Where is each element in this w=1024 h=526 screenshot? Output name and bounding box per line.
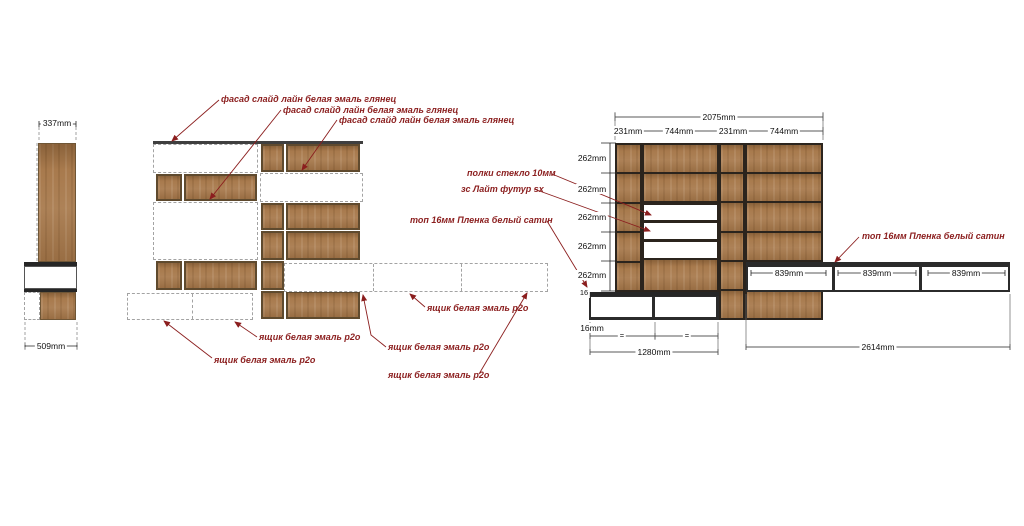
lowboard-divider (461, 264, 462, 291)
drawer-front (655, 297, 716, 317)
equal-mark: = (683, 331, 691, 341)
wood-shelf-cell (747, 291, 821, 318)
wood-panel (184, 261, 257, 290)
fasad-panel (260, 173, 363, 202)
wood-shelf-cell (721, 291, 743, 318)
dim-label-2075: 2075mm (700, 112, 737, 122)
wood-shelf-cell (721, 145, 743, 172)
dim-label-row: 262mm (576, 270, 608, 280)
wood-panel (286, 144, 360, 172)
wood-panel (156, 174, 182, 201)
furniture-drawing-canvas: 337mm 509mm фасад слайд лайн белая эмаль… (0, 0, 1024, 526)
leader-line (164, 321, 212, 358)
side-view-lowboard-body (24, 266, 77, 289)
wood-shelf-cell (644, 174, 717, 201)
cabinet-column-3 (719, 143, 745, 320)
equal-mark: = (618, 331, 626, 341)
dim-label-row: 262mm (576, 241, 608, 251)
wood-shelf-cell (747, 145, 821, 172)
dim-label-2614: 2614mm (859, 342, 896, 352)
wood-shelf-cell (617, 263, 640, 290)
lowboard-divider (373, 264, 374, 291)
wood-shelf-cell (721, 262, 743, 289)
drawer-note: ящик белая эмаль р2о (388, 370, 489, 380)
drawer-divider (192, 294, 193, 319)
side-view-drawer-side (24, 292, 40, 320)
wood-shelf-cell (747, 203, 821, 230)
middle-lowboard (284, 263, 548, 292)
drawer-note: ящик белая эмаль р2о (214, 355, 315, 365)
dim-label-col: 231mm (612, 126, 644, 136)
drawer-front (591, 297, 652, 317)
leader-line (172, 100, 219, 141)
wood-panel (156, 261, 182, 290)
wood-panel (261, 231, 284, 260)
wood-shelf-cell (617, 145, 640, 172)
cabinet-column-4 (745, 143, 823, 320)
side-view-base-panel (40, 292, 76, 320)
dim-label-col: 744mm (663, 126, 695, 136)
dim-label-337: 337mm (41, 118, 73, 128)
wood-panel (261, 144, 284, 172)
fasad-note: фасад слайд лайн белая эмаль глянец (221, 94, 396, 104)
dim-label-col: 744mm (768, 126, 800, 136)
back-panel-note: зс Лайт футур sx (461, 184, 544, 194)
dim-label-col: 231mm (717, 126, 749, 136)
wood-panel (261, 291, 284, 319)
wood-panel (261, 203, 284, 230)
leader-line (835, 237, 859, 262)
wood-shelf-cell (617, 204, 640, 231)
leader-line (410, 294, 425, 307)
dim-label-839: 839mm (773, 268, 805, 278)
top-note: топ 16мм Пленка белый сатин (862, 231, 1005, 241)
wood-shelf-cell (644, 145, 717, 172)
drawer-note: ящик белая эмаль р2о (388, 342, 489, 352)
drawer-note: ящик белая эмаль р2о (259, 332, 360, 342)
wood-shelf-cell (617, 233, 640, 260)
wood-panel (286, 203, 360, 230)
dim-label-16: 16 (578, 288, 590, 298)
wood-shelf-cell (721, 174, 743, 201)
glass-shelf-opening (644, 205, 717, 220)
glass-shelf-opening (644, 223, 717, 239)
wood-panel (286, 231, 360, 260)
leader-line (235, 322, 257, 337)
middle-bottom-drawers (127, 293, 253, 320)
wood-shelf-cell (747, 174, 821, 201)
fasad-note: фасад слайд лайн белая эмаль глянец (339, 115, 514, 125)
dim-label-839: 839mm (861, 268, 893, 278)
dim-label-row: 262mm (576, 184, 608, 194)
shelves-note: полки стекло 10мм (467, 168, 556, 178)
dim-label-16mm: 16mm (578, 323, 606, 333)
dim-label-row: 262mm (576, 153, 608, 163)
wood-shelf-cell (721, 233, 743, 260)
dim-label-1280: 1280mm (635, 347, 672, 357)
wood-shelf-cell (747, 233, 821, 260)
cabinet-column-2 (642, 143, 719, 292)
dim-label-row: 262mm (576, 212, 608, 222)
leader-line (363, 295, 386, 347)
dim-label-839: 839mm (950, 268, 982, 278)
wood-panel (261, 261, 284, 290)
fasad-note: фасад слайд лайн белая эмаль глянец (283, 105, 458, 115)
wood-shelf-cell (617, 174, 640, 201)
fasad-panel (153, 144, 258, 173)
drawer-note: ящик белая эмаль р2о (427, 303, 528, 313)
fasad-panel (153, 202, 258, 260)
side-view-tall-panel (38, 143, 76, 262)
wood-shelf-cell (644, 260, 717, 290)
dim-label-509: 509mm (35, 341, 67, 351)
wood-shelf-cell (721, 203, 743, 230)
cabinet-column-1 (615, 143, 642, 292)
drawer-unit (589, 296, 719, 320)
wood-panel (286, 291, 360, 319)
wood-panel (184, 174, 257, 201)
glass-shelf-opening (644, 242, 717, 258)
top-note: топ 16мм Пленка белый сатин (410, 215, 553, 225)
